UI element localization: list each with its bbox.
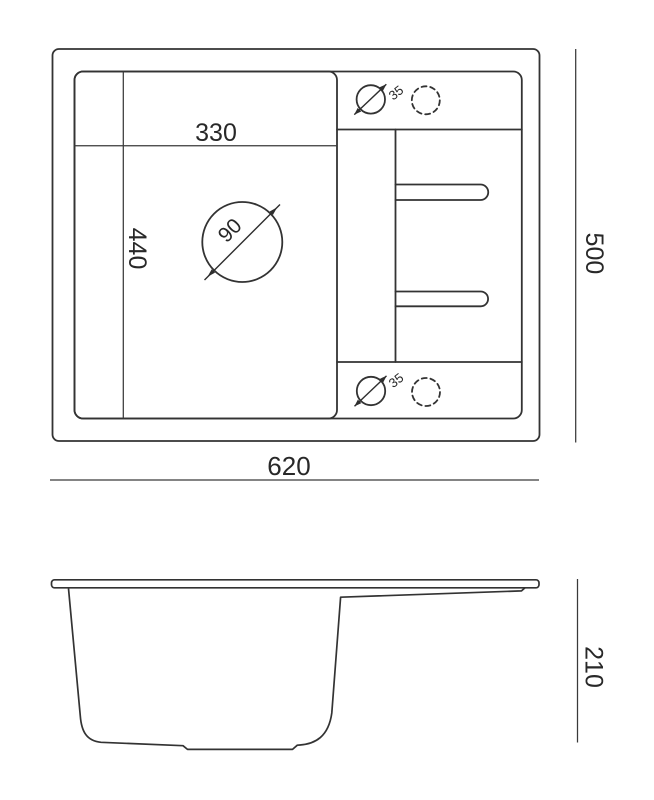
svg-text:35: 35	[386, 82, 407, 103]
svg-text:620: 620	[267, 451, 310, 481]
svg-text:330: 330	[195, 119, 237, 147]
svg-text:210: 210	[580, 646, 608, 688]
svg-text:500: 500	[580, 233, 608, 275]
svg-text:35: 35	[386, 370, 407, 391]
svg-text:440: 440	[123, 228, 151, 270]
